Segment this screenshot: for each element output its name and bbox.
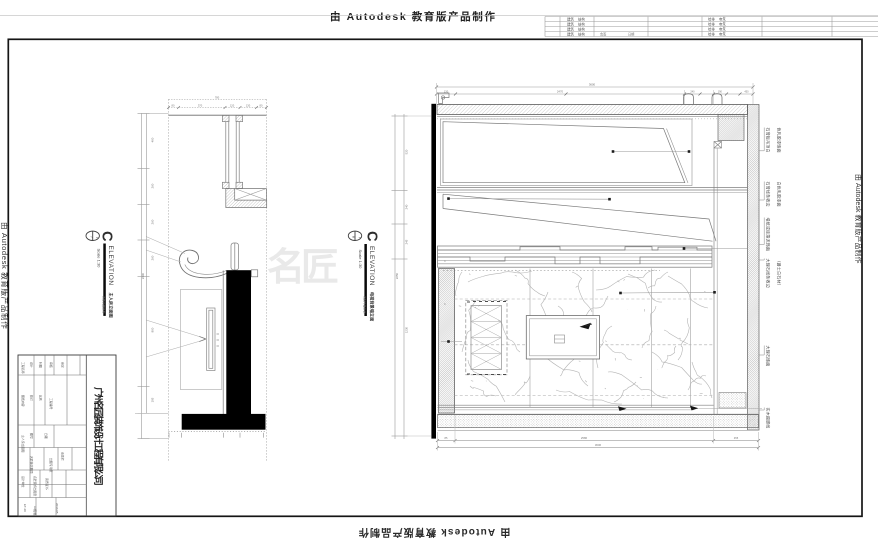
svg-text:3600: 3600 — [589, 83, 596, 87]
svg-text:Scale 1:30: Scale 1:30 — [97, 249, 102, 269]
svg-text:日期: 日期 — [628, 31, 634, 36]
svg-text:名匠装饰集团: 名匠装饰集团 — [30, 456, 35, 473]
svg-text:190: 190 — [718, 91, 723, 94]
svg-text:主人房立面图: 主人房立面图 — [108, 293, 115, 318]
svg-text:结构: 结构 — [578, 16, 585, 21]
svg-text:建筑: 建筑 — [567, 26, 574, 31]
svg-text:370: 370 — [198, 103, 203, 107]
svg-text:130: 130 — [246, 103, 251, 107]
svg-text:455: 455 — [734, 436, 739, 440]
svg-text:墙纸或硅藻泥饰面: 墙纸或硅藻泥饰面 — [766, 218, 772, 252]
svg-text:C: C — [99, 231, 115, 242]
svg-text:C: C — [444, 302, 446, 306]
svg-text:780: 780 — [215, 95, 220, 99]
svg-text:图纸内容: 图纸内容 — [21, 395, 26, 407]
svg-text:电视背景墙立面: 电视背景墙立面 — [369, 292, 376, 322]
svg-text:石膏板吊顶白: 石膏板吊顶白 — [766, 128, 772, 153]
svg-text:日期: 日期 — [44, 433, 49, 439]
svg-text:7: 7 — [89, 236, 93, 238]
svg-text:大理石饰面: 大理石饰面 — [766, 346, 772, 367]
svg-text:由 Autodesk 教育版产品制作: 由 Autodesk 教育版产品制作 — [358, 526, 511, 539]
svg-text:审定: 审定 — [61, 362, 66, 368]
svg-text:电气: 电气 — [719, 16, 726, 21]
svg-text:石膏线条收边: 石膏线条收边 — [766, 182, 772, 207]
svg-text:2470: 2470 — [557, 90, 564, 94]
svg-text:建筑: 建筑 — [567, 31, 574, 36]
svg-text:ELEVATION: ELEVATION — [368, 246, 375, 286]
svg-text:白色乳胶漆面: 白色乳胶漆面 — [777, 182, 783, 207]
svg-text:设计单位: 设计单位 — [21, 476, 26, 488]
svg-text:会签: 会签 — [600, 31, 607, 36]
svg-text:广州名匠装饰设计工程有限公司: 广州名匠装饰设计工程有限公司 — [93, 387, 104, 485]
svg-text:195: 195 — [151, 397, 155, 402]
svg-text:主人房立面图: 主人房立面图 — [21, 435, 26, 452]
svg-text:结构: 结构 — [578, 21, 585, 26]
svg-text:给排: 给排 — [708, 16, 715, 21]
svg-text:ET-20: ET-20 — [23, 504, 27, 512]
svg-text:大理石线条收边: 大理石线条收边 — [766, 259, 772, 288]
svg-text:给排: 给排 — [708, 26, 715, 31]
svg-text:8: 8 — [352, 236, 356, 238]
svg-text:会签栏: 会签栏 — [61, 452, 66, 461]
svg-text:260: 260 — [151, 255, 155, 260]
svg-text:实木踢脚线: 实木踢脚线 — [766, 408, 772, 429]
svg-text:建筑: 建筑 — [567, 16, 574, 21]
svg-text:C: C — [444, 259, 446, 263]
svg-text:1230: 1230 — [405, 326, 409, 333]
svg-text:2586: 2586 — [581, 436, 588, 440]
svg-text:给排: 给排 — [708, 31, 715, 36]
svg-text:衣柜内部结构: 衣柜内部结构 — [101, 296, 106, 313]
svg-text:520: 520 — [405, 149, 409, 154]
svg-text:设计: 设计 — [30, 362, 35, 368]
svg-text:建筑: 建筑 — [567, 21, 574, 26]
svg-text:2400: 2400 — [141, 272, 145, 279]
svg-text:出图专用章: 出图专用章 — [49, 458, 54, 473]
svg-text:2016.05: 2016.05 — [55, 503, 59, 514]
svg-text:结构: 结构 — [578, 26, 585, 31]
svg-text:ELEVATION: ELEVATION — [107, 246, 114, 286]
svg-text:400: 400 — [151, 137, 155, 142]
svg-text:450: 450 — [744, 91, 749, 94]
svg-text:由 Autodesk 教育版产品制作: 由 Autodesk 教育版产品制作 — [330, 10, 496, 23]
svg-text:审核: 审核 — [49, 362, 54, 368]
svg-text:2250: 2250 — [395, 272, 399, 279]
svg-text:结构: 结构 — [578, 31, 585, 36]
svg-text:工程编号: 工程编号 — [49, 398, 54, 410]
svg-text:名匠装饰出图章: 名匠装饰出图章 — [33, 476, 38, 496]
svg-text:240: 240 — [405, 204, 409, 209]
svg-text:电气: 电气 — [719, 21, 726, 26]
svg-text:名匠: 名匠 — [267, 247, 338, 289]
svg-text:A3图幅: A3图幅 — [33, 506, 38, 515]
svg-text:120: 120 — [230, 103, 235, 107]
svg-text:240: 240 — [690, 91, 695, 94]
svg-text:给排: 给排 — [708, 21, 715, 26]
svg-text:电气: 电气 — [719, 31, 726, 36]
svg-text:245: 245 — [405, 239, 409, 244]
svg-text:制图: 制图 — [39, 362, 44, 368]
svg-text:资质证书: 资质证书 — [45, 478, 50, 490]
svg-text:比例: 比例 — [39, 395, 44, 401]
svg-text:260: 260 — [151, 219, 155, 224]
svg-text:电气: 电气 — [719, 26, 726, 31]
svg-text:F: F — [358, 237, 362, 239]
svg-text:色乳胶漆饰面: 色乳胶漆饰面 — [777, 128, 783, 153]
svg-text:工程名称: 工程名称 — [21, 362, 26, 374]
svg-text:校对: 校对 — [30, 395, 35, 401]
svg-text:3606: 3606 — [595, 443, 602, 447]
svg-text:（爵士白石材）: （爵士白石材） — [777, 259, 783, 288]
svg-text:800: 800 — [151, 327, 155, 332]
svg-text:图号: 图号 — [30, 433, 35, 439]
svg-text:C: C — [364, 231, 380, 242]
svg-text:Scale 1:30: Scale 1:30 — [358, 250, 363, 270]
svg-text:260: 260 — [151, 183, 155, 188]
svg-text:石材干挂工艺: 石材干挂工艺 — [363, 296, 368, 313]
